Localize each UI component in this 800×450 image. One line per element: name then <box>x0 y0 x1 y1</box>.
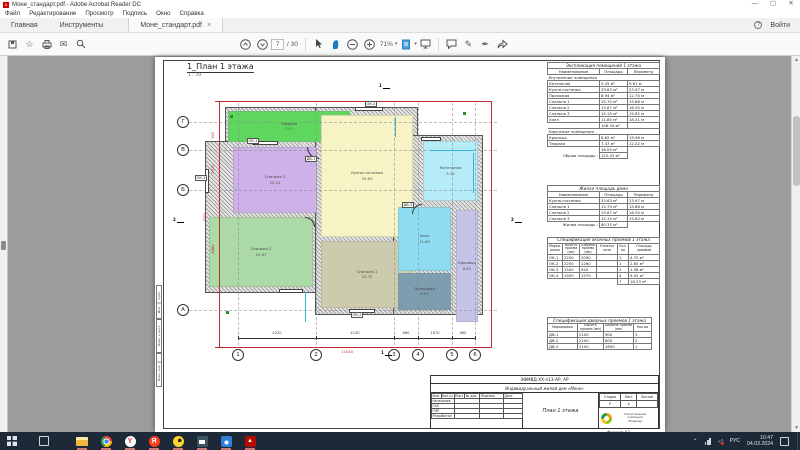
previous-page-icon[interactable] <box>237 38 254 49</box>
vertical-scrollbar[interactable]: ▲ ▼ <box>791 56 800 432</box>
language-indicator[interactable]: РУС <box>730 438 740 444</box>
dimension-value: 1870 <box>430 331 439 335</box>
tab-document[interactable]: Моне_стандарт.pdf × <box>128 18 223 32</box>
zoom-level[interactable]: 71% <box>378 41 395 48</box>
inner-dimension-line <box>305 292 306 322</box>
taskbar-yandex-browser[interactable]: Y <box>118 432 142 450</box>
dimension-total: 7500 <box>203 207 207 227</box>
section-mark: 1 <box>381 350 384 355</box>
axis-marker <box>226 311 229 314</box>
grid-bubble-col: 1 <box>232 349 244 361</box>
zoom-out-icon[interactable] <box>344 38 361 49</box>
window-title: Моне_стандарт.pdf - Adobe Acrobat Reader… <box>12 2 141 8</box>
grid-bubble-row: Б <box>177 184 189 196</box>
window-opening <box>355 107 383 111</box>
restore-button[interactable]: ▢ <box>764 0 782 9</box>
stamp-object-name: Индивидуальный жилой дом «Моне» <box>431 384 658 393</box>
yandex-icon: Я <box>149 436 160 447</box>
opening-mark: ОК-3 <box>195 175 207 181</box>
print-icon[interactable] <box>38 39 55 49</box>
pane-toggle-handle[interactable] <box>1 241 6 250</box>
calculator-icon <box>197 436 208 447</box>
explication-table: Экспликация помещений 1 этажа Наименован… <box>547 62 660 159</box>
volume-icon[interactable]: ◁ <box>718 438 723 445</box>
tab-tools[interactable]: Инструменты <box>49 18 115 32</box>
yandex-browser-icon: Y <box>125 436 136 447</box>
scroll-down-icon[interactable]: ▼ <box>792 425 800 431</box>
axis-marker <box>230 115 233 118</box>
dimension-tick <box>418 336 419 340</box>
close-button[interactable]: ✕ <box>782 0 800 9</box>
inner-dimension-line <box>395 117 396 137</box>
next-page-icon[interactable] <box>254 38 271 49</box>
system-tray: ⌃ ◁ РУС 10:47 04.03.2024 <box>693 435 797 447</box>
taskbar-acrobat[interactable]: ▲ <box>238 432 262 450</box>
document-area[interactable]: 1_План 1 этажа 1 : 70 Терраса7.47Спальня… <box>0 56 800 432</box>
inner-dimension-line <box>473 153 474 193</box>
start-button[interactable] <box>0 432 24 450</box>
section-mark: 2 <box>511 217 514 222</box>
dimension-line <box>219 101 220 348</box>
company-name: Строительнаякомпания«Подряд» <box>614 413 656 423</box>
task-view-icon <box>39 436 49 446</box>
dimension-tick <box>238 336 239 340</box>
grid-axis-line <box>452 103 453 345</box>
taskbar: Y Я ▲ ⌃ ◁ РУС 10:47 04.03.2024 <box>0 432 800 450</box>
stamp-stage-table: СтадияЛистЛистов Р4 <box>599 393 658 408</box>
dimension-value: 4220 <box>272 331 281 335</box>
tabbar: Главная Инструменты Моне_стандарт.pdf × … <box>0 18 800 33</box>
opening-mark: ОК-2 <box>351 312 363 318</box>
door-spec-table: Спецификация дверных проемов 1 этажа Мар… <box>547 317 652 350</box>
dimension-tick <box>394 336 395 340</box>
window-opening <box>421 137 441 141</box>
company-logo-icon <box>601 413 612 424</box>
screen: A Моне_стандарт.pdf - Adobe Acrobat Read… <box>0 0 800 450</box>
dimension-tick <box>452 336 453 340</box>
page-count: / 30 <box>287 41 298 48</box>
tab-close-icon[interactable]: × <box>207 22 211 29</box>
menu-item[interactable]: Подпись <box>123 10 148 17</box>
frame-attribute-label: Взам. инв. № <box>156 353 162 387</box>
taskbar-chrome[interactable] <box>94 432 118 450</box>
menu-item[interactable]: Окно <box>156 10 170 17</box>
page-number-input[interactable]: 7 <box>271 39 284 50</box>
search-icon[interactable] <box>72 39 89 50</box>
fit-width-icon[interactable] <box>397 38 414 49</box>
taskbar-yandex[interactable]: Я <box>142 432 166 450</box>
sign-in-button[interactable]: Войти <box>770 22 790 29</box>
grid-axis-line <box>475 103 476 345</box>
dimension-value: 4480 <box>211 239 215 259</box>
grid-axis-line <box>189 310 497 311</box>
room-area: 5.25 <box>446 171 454 176</box>
opening-mark: ДВ-1 <box>305 156 317 162</box>
room-area: 11.80 <box>419 239 430 244</box>
grid-axis-line <box>189 190 497 191</box>
task-view-button[interactable] <box>32 432 56 450</box>
dimension-value: 4130 <box>350 331 359 335</box>
room-area: 33.63 <box>362 176 373 181</box>
network-icon[interactable] <box>705 438 711 445</box>
tray-date: 04.03.2024 <box>747 441 773 447</box>
title-block: ЭФМВД-ХХ-п13-АР, АР Индивидуальный жилой… <box>430 375 659 429</box>
windows-logo-icon <box>7 436 17 446</box>
menu-item[interactable]: Просмотр <box>85 10 113 17</box>
navigation-pane-strip[interactable] <box>0 56 8 432</box>
room-area: 8.94 <box>420 291 428 296</box>
email-icon[interactable]: ✉ <box>55 39 72 50</box>
taskbar-blue-app[interactable] <box>214 432 238 450</box>
opening-mark: ДВ-3 <box>402 202 414 208</box>
room-area: 15.87 <box>256 252 267 257</box>
tray-expand-icon[interactable]: ⌃ <box>693 438 698 445</box>
dimension-tick <box>316 336 317 340</box>
blue-app-icon <box>221 436 232 447</box>
grid-axis-line <box>238 103 239 345</box>
menubar: ФайлРедактированиеПросмотрПодписьОкноСпр… <box>0 9 800 18</box>
inner-dimension-line <box>430 150 475 151</box>
dimension-value: 660 <box>460 331 467 335</box>
tab-home[interactable]: Главная <box>0 18 49 32</box>
notification-center-icon[interactable] <box>780 437 789 446</box>
stamp-sheet-title: План 1 этажа <box>523 393 599 428</box>
comment-icon[interactable] <box>443 39 460 50</box>
room-area: 8.62 <box>463 266 471 271</box>
room-holl: Холл11.80 <box>398 207 451 271</box>
scroll-up-icon[interactable]: ▲ <box>792 57 800 63</box>
share-icon[interactable] <box>494 39 511 50</box>
dimension-value: 2520 <box>211 159 215 179</box>
dimension-line <box>238 338 475 339</box>
menu-item[interactable]: Справка <box>180 10 204 17</box>
window-titlebar: A Моне_стандарт.pdf - Adobe Acrobat Read… <box>0 0 800 9</box>
window-opening <box>279 289 303 293</box>
taskbar-maps-app[interactable] <box>166 432 190 450</box>
grid-bubble-col: 6 <box>469 349 481 361</box>
dimension-total: 11540 <box>341 349 353 354</box>
section-mark: 2 <box>173 217 176 222</box>
window-spec-table: Спецификация оконных проемов 1 этажа Мар… <box>547 237 660 285</box>
pencil-icon[interactable]: ✎ <box>460 39 477 50</box>
dimension-value: 660 <box>403 331 410 335</box>
room-area: 15.70 <box>362 274 373 279</box>
acrobat-reader-icon: ▲ <box>245 436 256 447</box>
acrobat-app-icon: A <box>3 2 9 8</box>
yellow-app-icon <box>173 436 184 447</box>
opening-mark: ОК-2 <box>365 101 377 107</box>
stamp-document-code: ЭФМВД-ХХ-п13-АР, АР <box>431 376 658 384</box>
pdf-page: 1_План 1 этажа 1 : 70 Терраса7.47Спальня… <box>155 57 665 432</box>
room-prihozhaya: Прихожая8.94 <box>398 273 451 310</box>
taskbar-calculator[interactable] <box>190 432 214 450</box>
grid-axis-line <box>316 103 317 345</box>
room-spalnya2: Спальня 215.87 <box>209 217 313 287</box>
grid-axis-line <box>418 103 419 345</box>
minimize-button[interactable]: — <box>746 0 764 9</box>
stamp-revision-table: Изм.Кол.учЛист№ док.ПодписьДата Начальни… <box>431 393 523 428</box>
select-tool-icon[interactable] <box>310 39 327 50</box>
grid-bubble-row: В <box>177 144 189 156</box>
star-icon[interactable]: ☆ <box>21 39 38 50</box>
dimension-value: 500 <box>211 125 215 145</box>
grid-bubble-col: 4 <box>412 349 424 361</box>
dimension-line <box>215 347 491 348</box>
toolbar: ☆ ✉ 7 / 30 71% ▾ ▾ ✎ ✒ <box>0 33 800 56</box>
frame-attribute-label: Подп. и дата <box>156 319 162 353</box>
grid-bubble-row: Г <box>177 116 189 128</box>
hand-tool-icon[interactable] <box>327 38 344 49</box>
zoom-in-icon[interactable] <box>361 38 378 49</box>
taskbar-file-explorer[interactable] <box>70 432 94 450</box>
sign-icon[interactable]: ✒ <box>477 39 494 50</box>
help-icon[interactable]: ? <box>754 21 762 29</box>
menu-item[interactable]: Файл <box>5 10 20 17</box>
clock[interactable]: 10:47 04.03.2024 <box>747 435 773 447</box>
grid-bubble-col: 2 <box>310 349 322 361</box>
opening-mark: ОК-1 <box>247 138 259 144</box>
room-area: 7.47 <box>285 126 293 131</box>
grid-bubble-col: 5 <box>446 349 458 361</box>
scrollbar-thumb[interactable] <box>793 116 800 186</box>
menu-item[interactable]: Редактирование <box>29 10 76 17</box>
room-area: 15.15 <box>270 180 281 185</box>
save-icon[interactable] <box>4 39 21 49</box>
chrome-icon <box>101 436 112 447</box>
section-mark: 1 <box>379 83 382 88</box>
file-explorer-icon <box>76 437 88 446</box>
grid-axis-line <box>189 122 497 123</box>
grid-bubble-row: А <box>177 304 189 316</box>
dimension-line <box>215 101 491 102</box>
frame-side-labels: Инв. № подл.Подп. и датаВзам. инв. № <box>156 285 163 387</box>
frame-attribute-label: Инв. № подл. <box>156 285 162 319</box>
dimension-line <box>491 101 492 348</box>
grid-axis-line <box>394 103 395 345</box>
dimension-tick <box>475 336 476 340</box>
axis-marker <box>463 112 466 115</box>
window-opening <box>205 169 209 193</box>
reading-mode-icon[interactable] <box>417 39 434 50</box>
living-area-table: Жилая площадь дома НаименованиеПлощадьПе… <box>547 185 660 228</box>
